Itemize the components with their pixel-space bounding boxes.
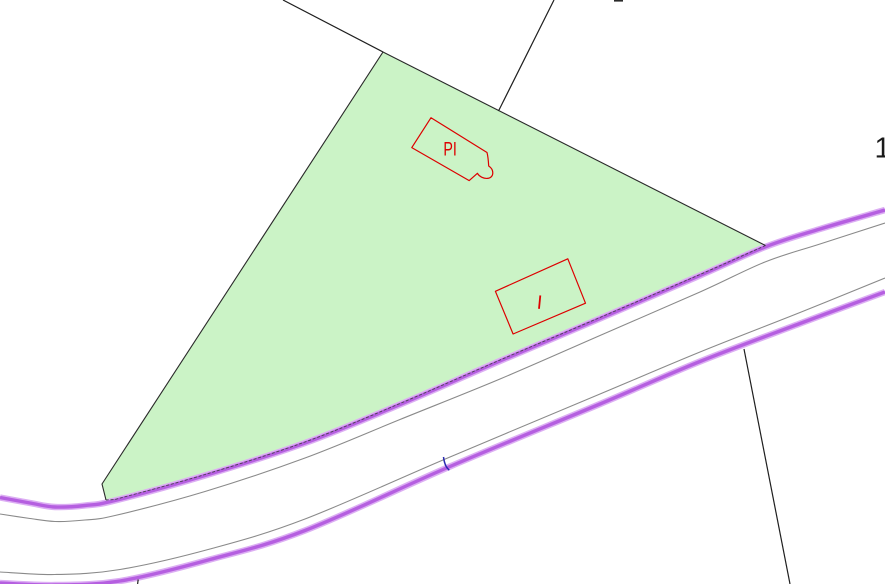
svg-text:1: 1 (875, 133, 885, 165)
svg-text:PI: PI (443, 140, 457, 161)
